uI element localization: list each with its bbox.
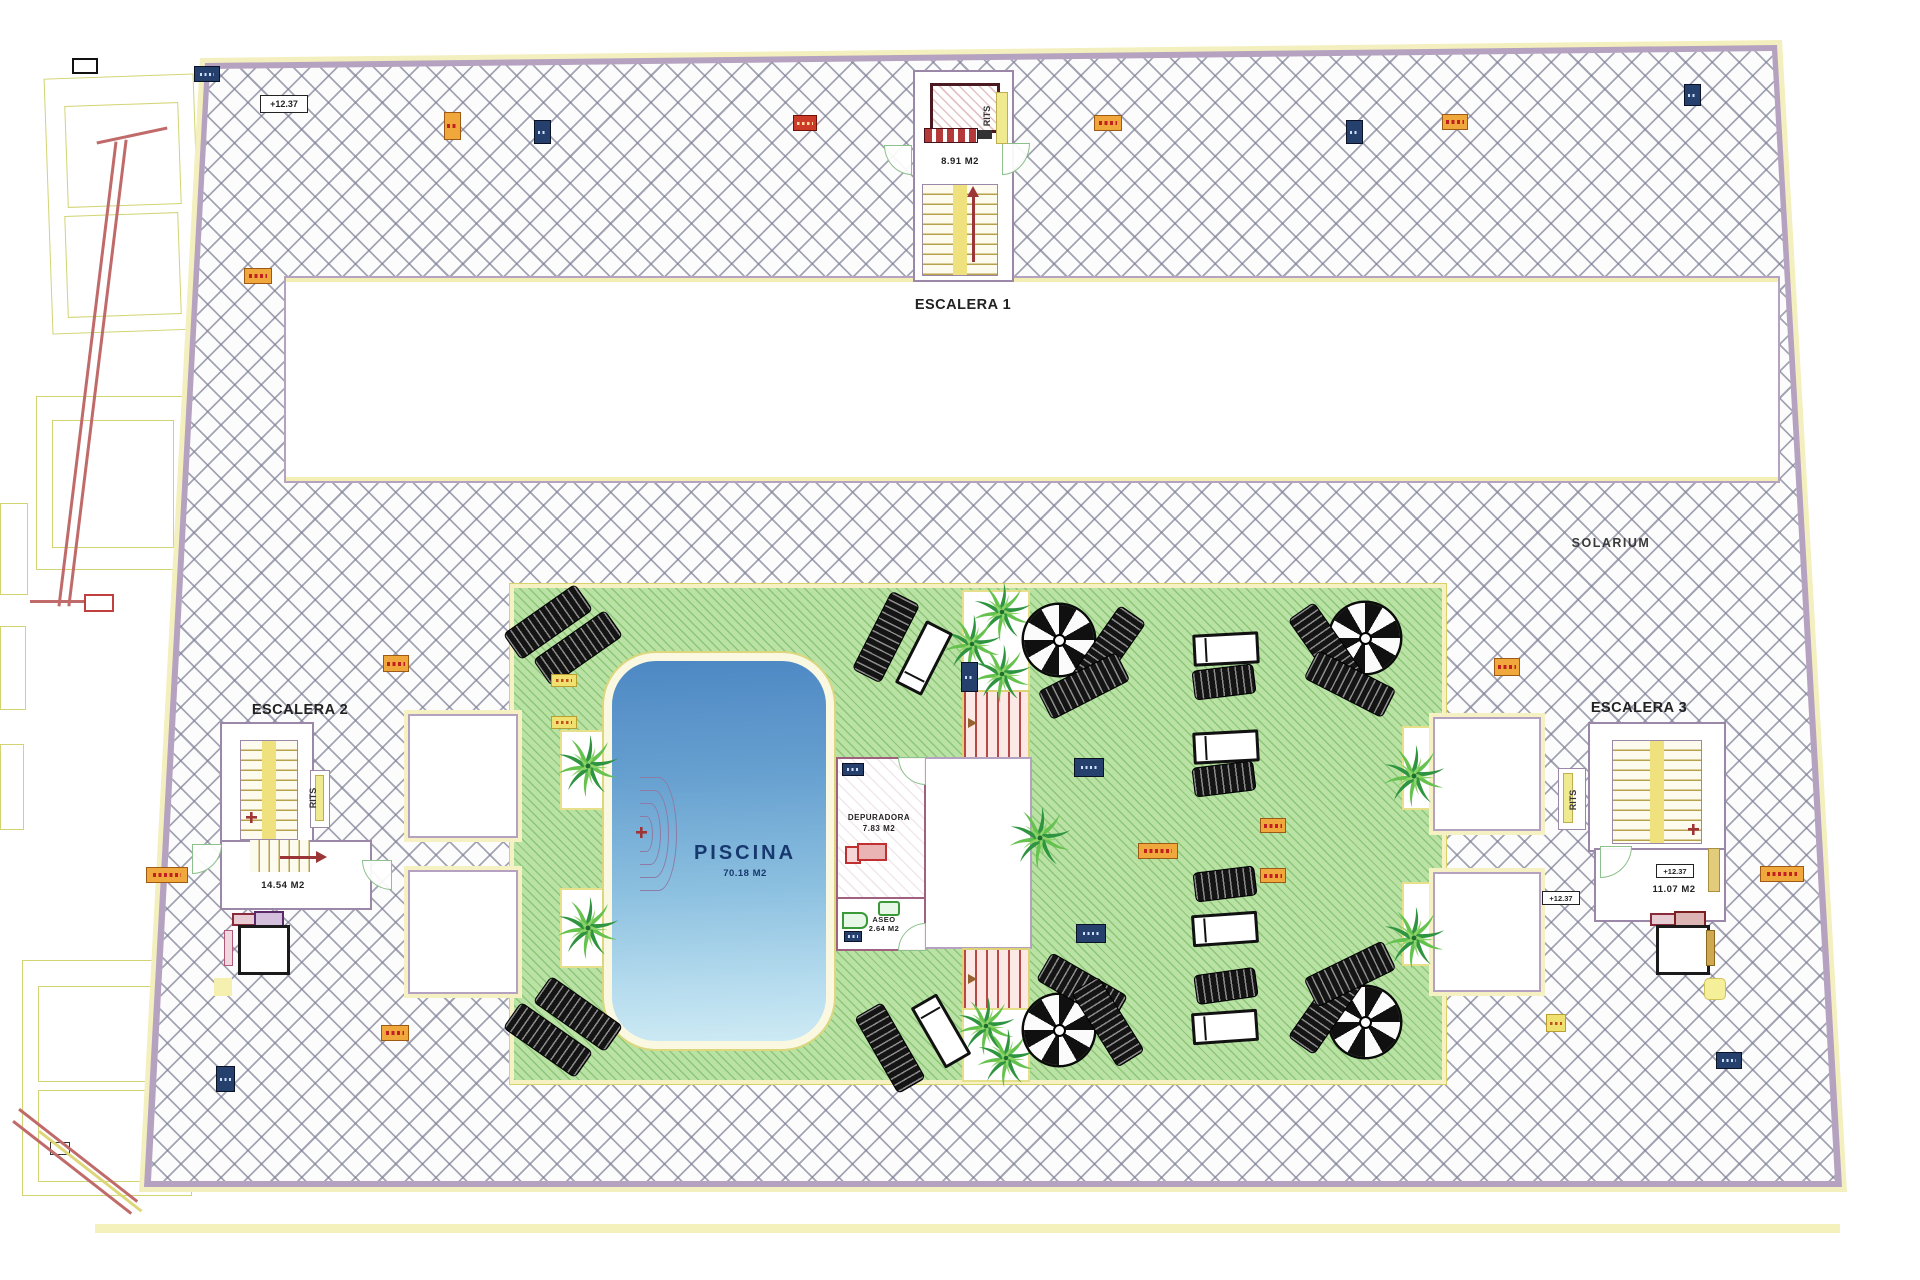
- vent-marker: [961, 662, 978, 692]
- elevator-door-icon: [978, 130, 992, 139]
- sink-icon: [878, 901, 900, 916]
- stair2-arrow: [280, 856, 318, 859]
- elevator-car: [238, 925, 290, 975]
- vent-marker: [1346, 120, 1363, 144]
- deck-notch: [1704, 978, 1726, 1000]
- equipment-badge: [844, 931, 862, 942]
- vent-marker: [1074, 758, 1104, 777]
- stair1-landing-area: 8.91 M2: [920, 156, 1000, 167]
- escalera2-label: ESCALERA 2: [235, 702, 365, 718]
- elevator-rail: [224, 930, 233, 966]
- stair2-flight: [240, 740, 298, 840]
- site-boundary-yellow: [95, 1224, 1840, 1233]
- pump-icon: [857, 843, 887, 861]
- rits-label: RITS: [967, 109, 1007, 123]
- stair-direction-arrow: [968, 718, 977, 728]
- stair1-flight: [922, 184, 998, 276]
- escalera3-label: ESCALERA 3: [1574, 700, 1704, 716]
- palm-tree-icon: [1380, 742, 1448, 810]
- palm-tree-icon: [554, 894, 622, 962]
- level-marker: [146, 867, 188, 883]
- solarium-label: SOLARIUM: [1546, 536, 1676, 550]
- deck-notch: [214, 978, 232, 996]
- level-marker: [444, 112, 461, 140]
- skylight-room: [1433, 872, 1541, 992]
- stair2-arrow-head: [316, 851, 327, 863]
- level-marker: [1760, 866, 1804, 882]
- elevator-car: [1656, 925, 1710, 975]
- strip-red-band: [30, 600, 92, 603]
- strip-room: [0, 626, 26, 710]
- door-arc: [898, 757, 926, 785]
- depuradora-room: DEPURADORA 7.83 M2: [836, 757, 926, 901]
- level-marker: [551, 716, 577, 729]
- aseo-room: ASEO 2.64 M2: [836, 897, 926, 951]
- strip-room: [64, 212, 181, 318]
- elevator-door-icon: [924, 128, 978, 143]
- stair3-landing-area: 11.07 M2: [1646, 884, 1702, 895]
- skylight-room: [1433, 717, 1541, 831]
- vent-marker: [194, 66, 220, 82]
- stair2-landing-area: 14.54 M2: [238, 880, 328, 891]
- pool-area: 70.18 M2: [660, 868, 830, 879]
- stair1-arrow: [972, 196, 975, 262]
- level-marker: [793, 115, 817, 131]
- depuradora-name: DEPURADORA: [838, 813, 920, 822]
- palm-tree-icon: [970, 642, 1034, 706]
- strip-room: [0, 503, 28, 595]
- vent-marker: [1076, 924, 1106, 943]
- level-marker: [1442, 114, 1468, 130]
- palm-tree-icon: [554, 732, 622, 800]
- aseo-name: ASEO: [862, 915, 906, 924]
- level-marker: [1260, 868, 1286, 883]
- pool-axis-cross: [636, 827, 647, 838]
- sun-lounger-white-icon: [1192, 729, 1260, 764]
- sun-lounger-white-icon: [1191, 911, 1259, 948]
- vent-marker: [1684, 84, 1701, 106]
- level-marker: [1260, 818, 1286, 833]
- stair1-arrow-head: [967, 186, 979, 197]
- level-marker: [383, 655, 409, 672]
- strip-room: [0, 744, 24, 830]
- rits-duct: [1708, 848, 1720, 892]
- rits-label: RITS: [1553, 793, 1593, 807]
- elevation-badge: +12.37: [1656, 864, 1694, 878]
- sun-lounger-white-icon: [1192, 631, 1260, 666]
- strip-black-box: [72, 58, 98, 74]
- escalera1-label: ESCALERA 1: [888, 297, 1038, 313]
- level-marker: [1094, 115, 1122, 131]
- strip-red-box: [84, 594, 114, 612]
- level-marker: [1138, 843, 1178, 859]
- palm-tree-icon: [1006, 804, 1074, 872]
- sun-lounger-white-icon: [1191, 1009, 1259, 1046]
- stair3-cross: [1688, 824, 1699, 835]
- elevation-marker: +12.37: [260, 95, 308, 113]
- floor-plan: SOLARIUM DEPURADORA 7.83 M2 ASEO 2.64 M2: [0, 0, 1920, 1280]
- level-marker: [1546, 1014, 1566, 1032]
- level-marker: [551, 674, 577, 687]
- aseo-area: 2.64 M2: [860, 924, 908, 933]
- stair2-cross: [246, 812, 257, 823]
- elevator-rail: [1706, 930, 1715, 966]
- skylight-room: [408, 870, 518, 994]
- elevation-marker: +12.37: [1542, 891, 1580, 905]
- level-marker: [381, 1025, 409, 1041]
- stair-direction-arrow: [968, 974, 977, 984]
- skylight-room: [408, 714, 518, 838]
- vent-marker: [216, 1066, 235, 1092]
- depuradora-area: 7.83 M2: [838, 824, 920, 833]
- rits-label: RITS: [293, 791, 333, 805]
- pool-name: PISCINA: [660, 842, 830, 865]
- strip-room: [52, 420, 174, 548]
- level-marker: [1494, 658, 1520, 676]
- vent-marker: [1716, 1052, 1742, 1069]
- level-marker: [244, 268, 272, 284]
- vent-marker: [534, 120, 551, 144]
- equipment-badge: [842, 763, 864, 776]
